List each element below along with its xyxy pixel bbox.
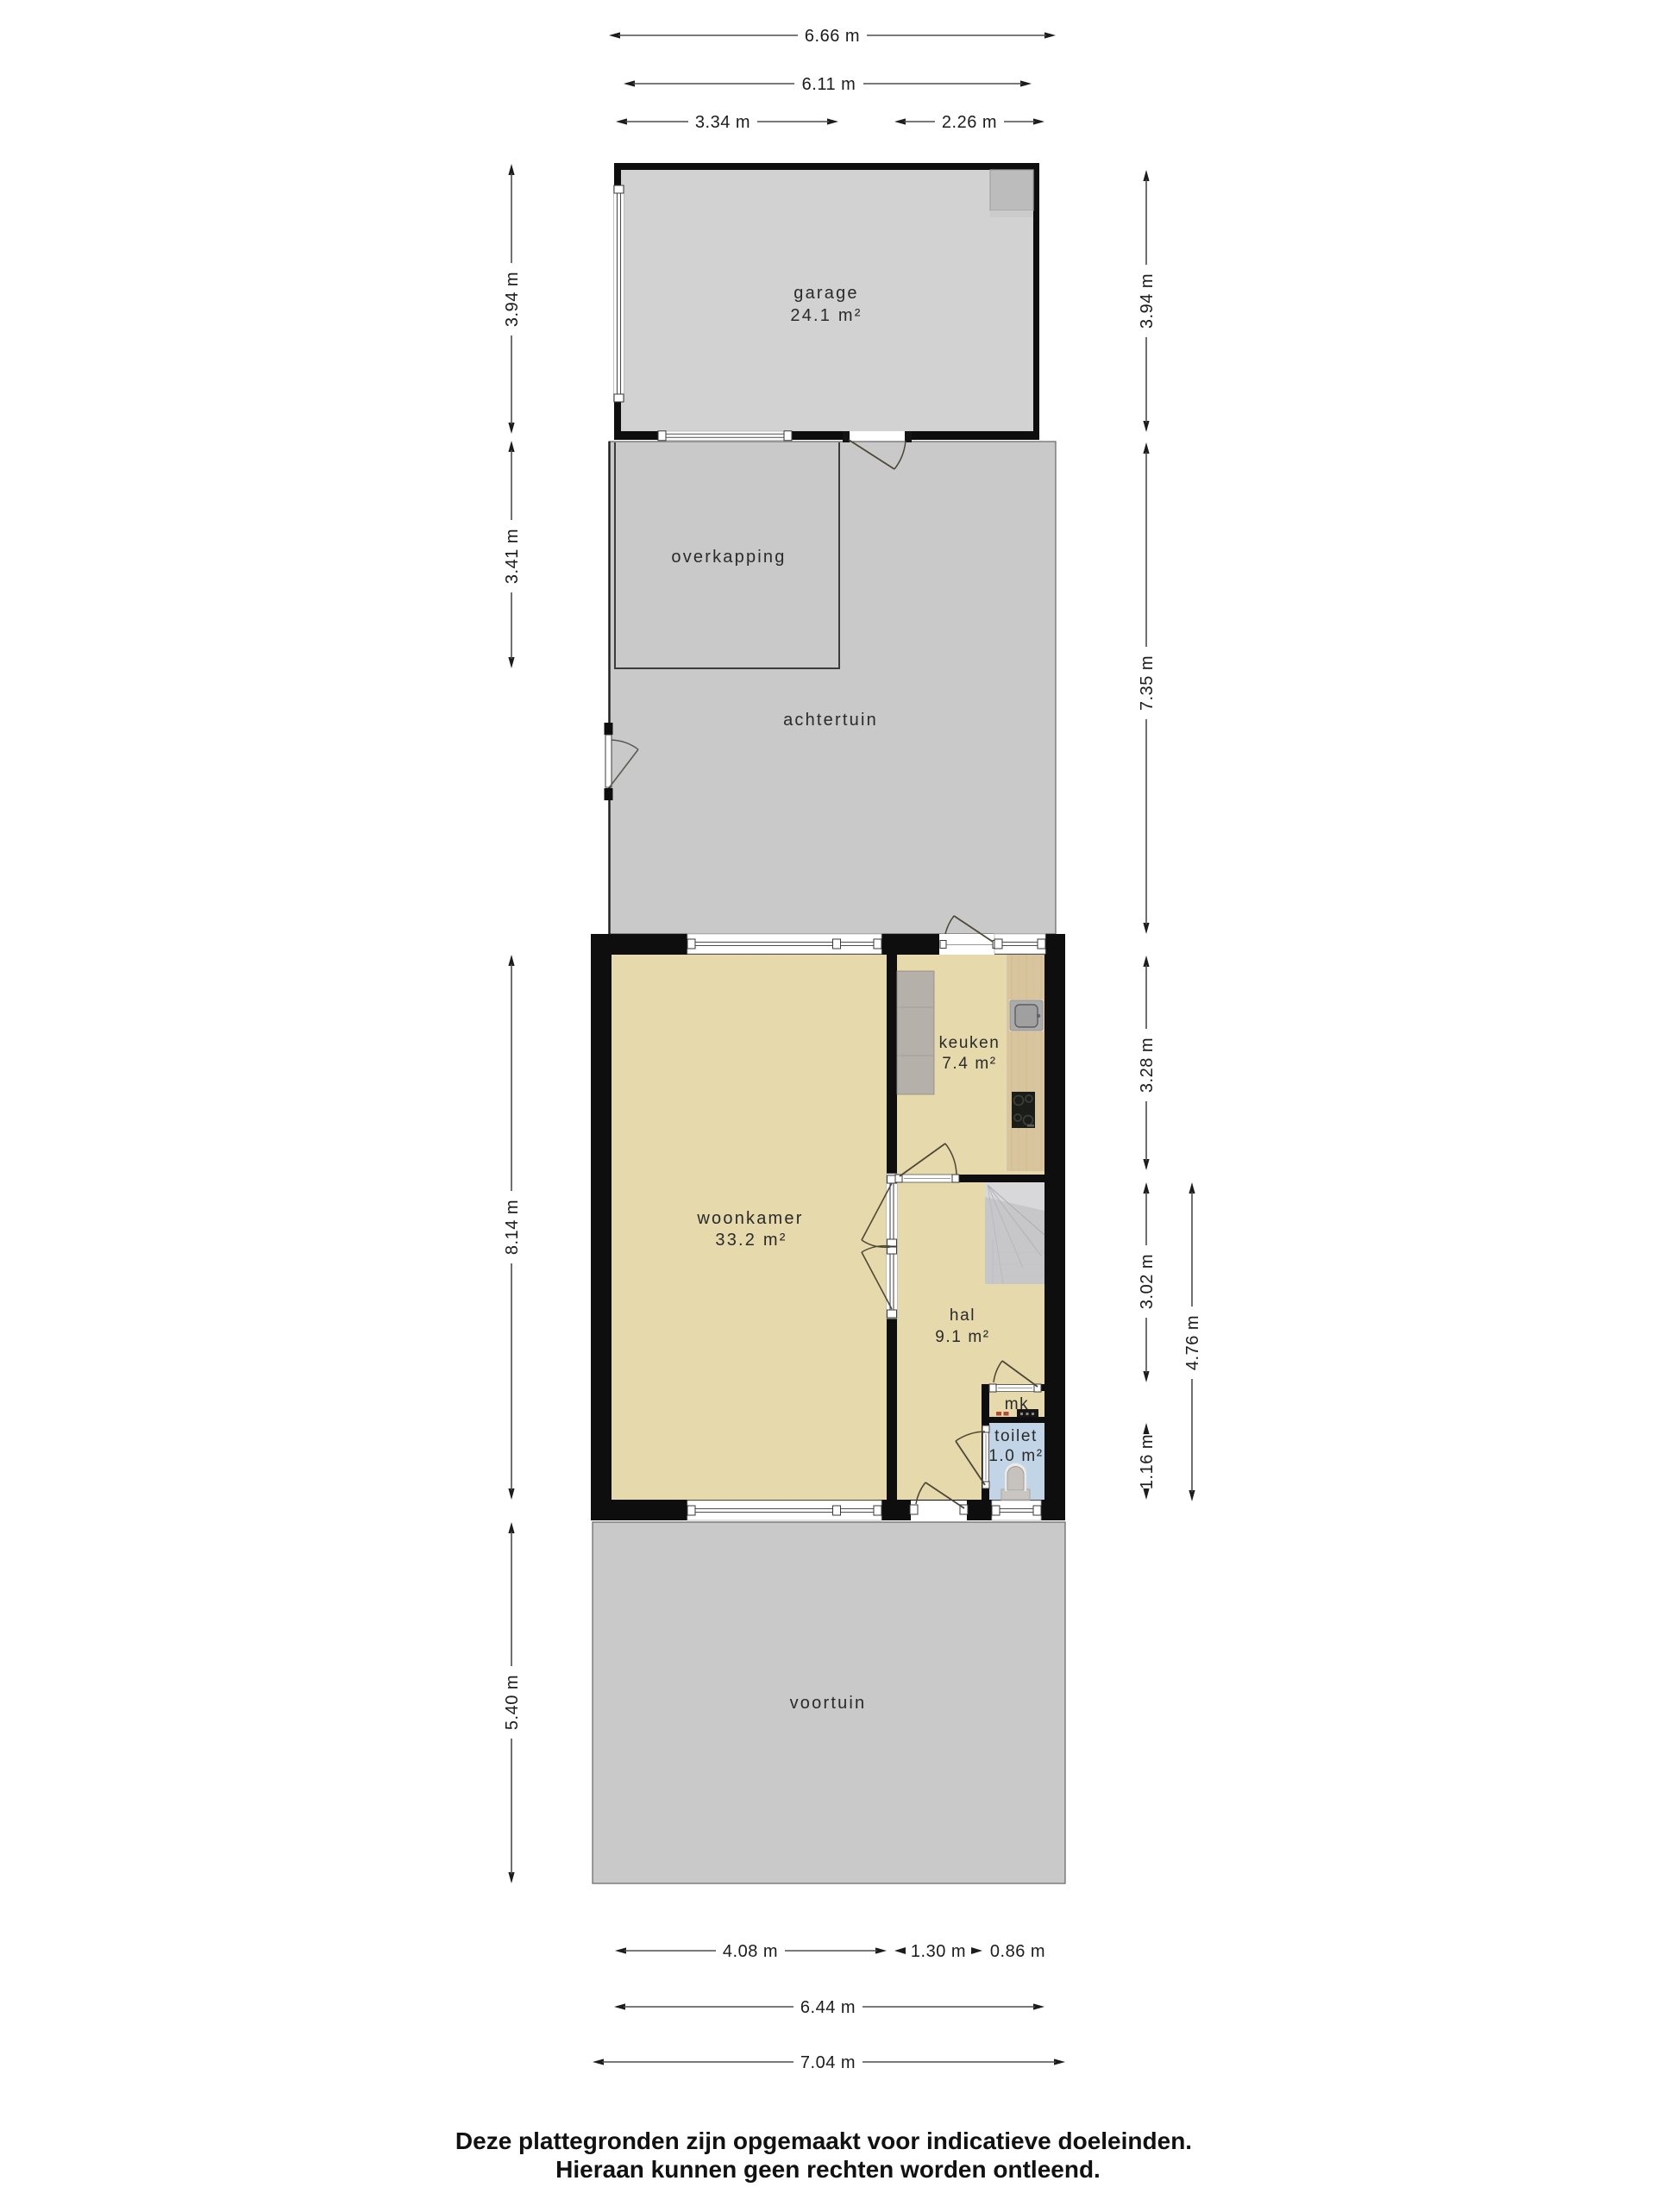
- svg-text:3.28 m: 3.28 m: [1138, 1037, 1157, 1093]
- svg-text:0.86 m: 0.86 m: [990, 1942, 1045, 1961]
- svg-text:1.16 m: 1.16 m: [1138, 1434, 1157, 1489]
- svg-text:hal: hal: [950, 1307, 975, 1325]
- svg-text:24.1 m²: 24.1 m²: [790, 306, 862, 325]
- svg-text:woonkamer: woonkamer: [696, 1209, 803, 1228]
- svg-text:3.94 m: 3.94 m: [1138, 273, 1157, 329]
- svg-text:2.26 m: 2.26 m: [942, 113, 997, 132]
- svg-text:7.35 m: 7.35 m: [1138, 655, 1157, 711]
- svg-text:9.1 m²: 9.1 m²: [935, 1328, 989, 1346]
- svg-text:Deze plattegronden zijn opgema: Deze plattegronden zijn opgemaakt voor i…: [455, 2127, 1192, 2154]
- svg-text:6.44 m: 6.44 m: [800, 1998, 856, 2017]
- svg-text:3.41 m: 3.41 m: [503, 529, 522, 584]
- svg-text:keuken: keuken: [939, 1034, 1000, 1052]
- svg-text:7.4 m²: 7.4 m²: [942, 1055, 996, 1073]
- svg-text:3.94 m: 3.94 m: [503, 272, 522, 327]
- svg-text:6.66 m: 6.66 m: [805, 27, 860, 46]
- svg-text:3.34 m: 3.34 m: [695, 113, 750, 132]
- svg-text:3.02 m: 3.02 m: [1138, 1254, 1157, 1309]
- svg-text:33.2 m²: 33.2 m²: [715, 1231, 787, 1250]
- svg-text:toilet: toilet: [994, 1427, 1038, 1445]
- svg-text:1.30 m: 1.30 m: [911, 1942, 966, 1961]
- svg-text:7.04 m: 7.04 m: [800, 2053, 856, 2072]
- svg-text:6.11 m: 6.11 m: [802, 75, 856, 94]
- svg-text:overkapping: overkapping: [671, 548, 786, 567]
- svg-text:voortuin: voortuin: [790, 1694, 867, 1713]
- svg-text:4.76 m: 4.76 m: [1183, 1315, 1202, 1370]
- svg-text:8.14 m: 8.14 m: [503, 1200, 522, 1255]
- svg-text:1.0 m²: 1.0 m²: [988, 1447, 1043, 1465]
- svg-text:5.40 m: 5.40 m: [503, 1675, 522, 1730]
- svg-text:Hieraan kunnen geen rechten wo: Hieraan kunnen geen rechten worden ontle…: [555, 2156, 1101, 2183]
- svg-text:garage: garage: [793, 284, 858, 303]
- svg-text:achtertuin: achtertuin: [783, 711, 878, 730]
- svg-text:4.08 m: 4.08 m: [723, 1942, 778, 1961]
